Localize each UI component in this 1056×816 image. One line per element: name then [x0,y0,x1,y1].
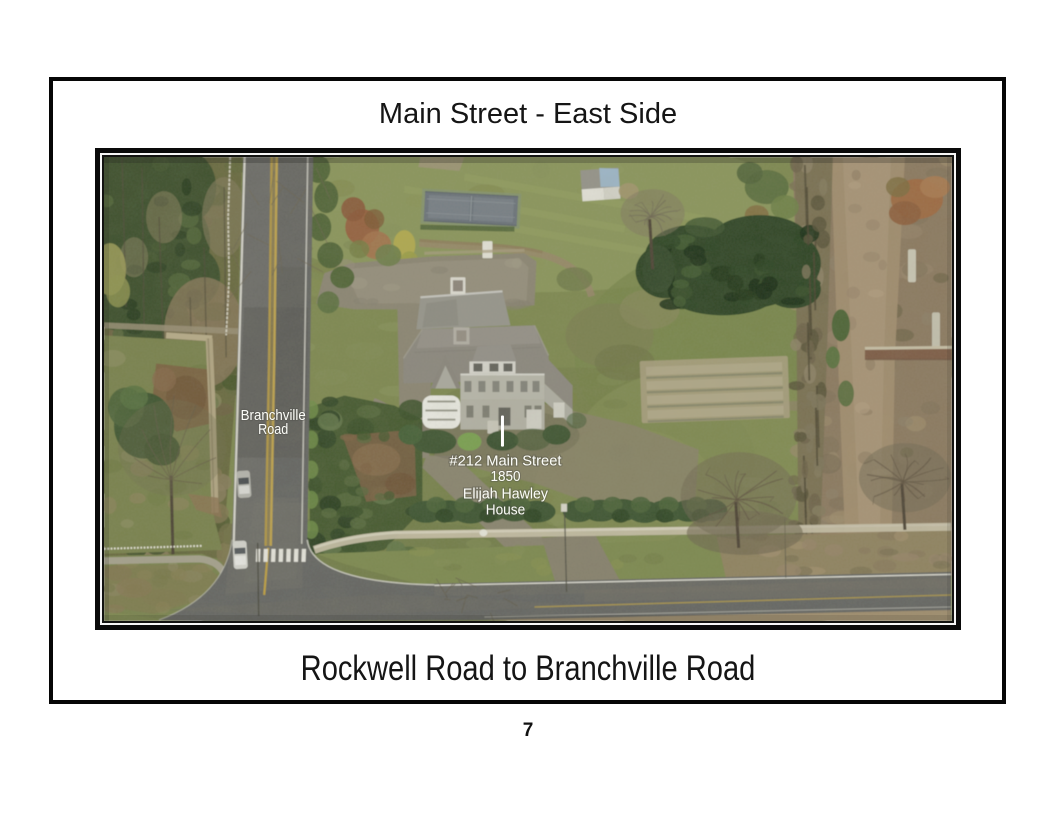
svg-text:Elijah Hawley: Elijah Hawley [463,487,549,503]
svg-text:1850: 1850 [490,469,520,485]
svg-text:Road: Road [258,422,288,438]
svg-text:#212 Main Street: #212 Main Street [449,454,561,470]
svg-text:House: House [486,502,526,518]
